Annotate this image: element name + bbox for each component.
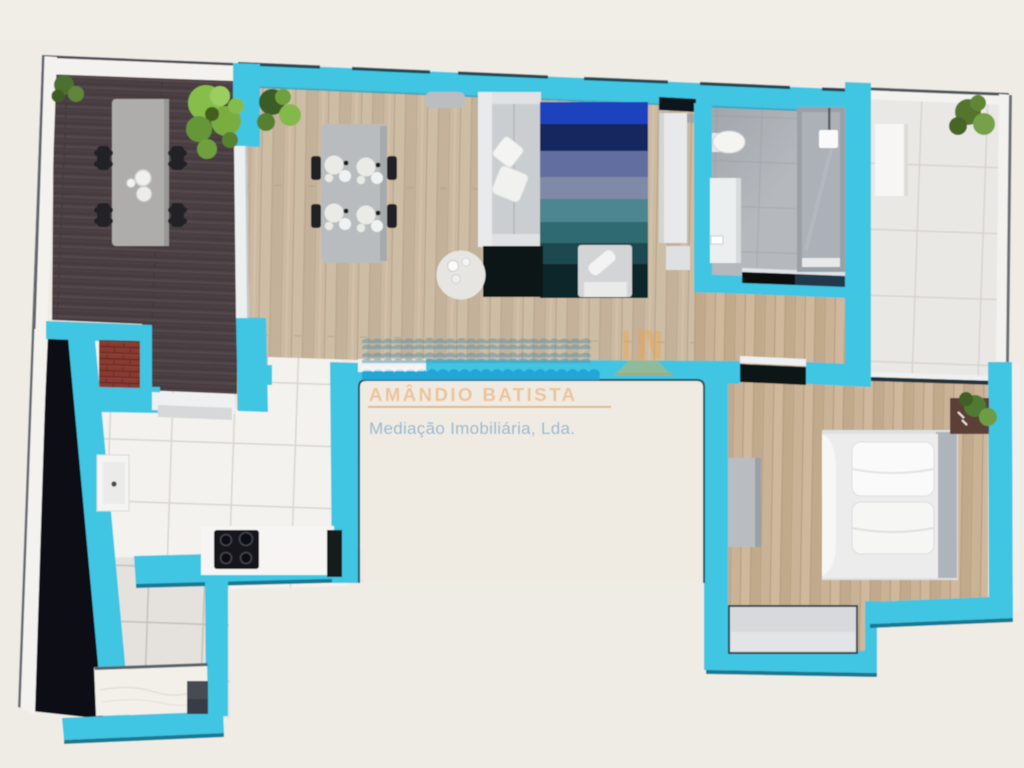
svg-text:Mediação Imobiliária, Lda.: Mediação Imobiliária, Lda. (369, 419, 575, 438)
svg-text:AMÂNDIO BATISTA: AMÂNDIO BATISTA (369, 384, 577, 405)
